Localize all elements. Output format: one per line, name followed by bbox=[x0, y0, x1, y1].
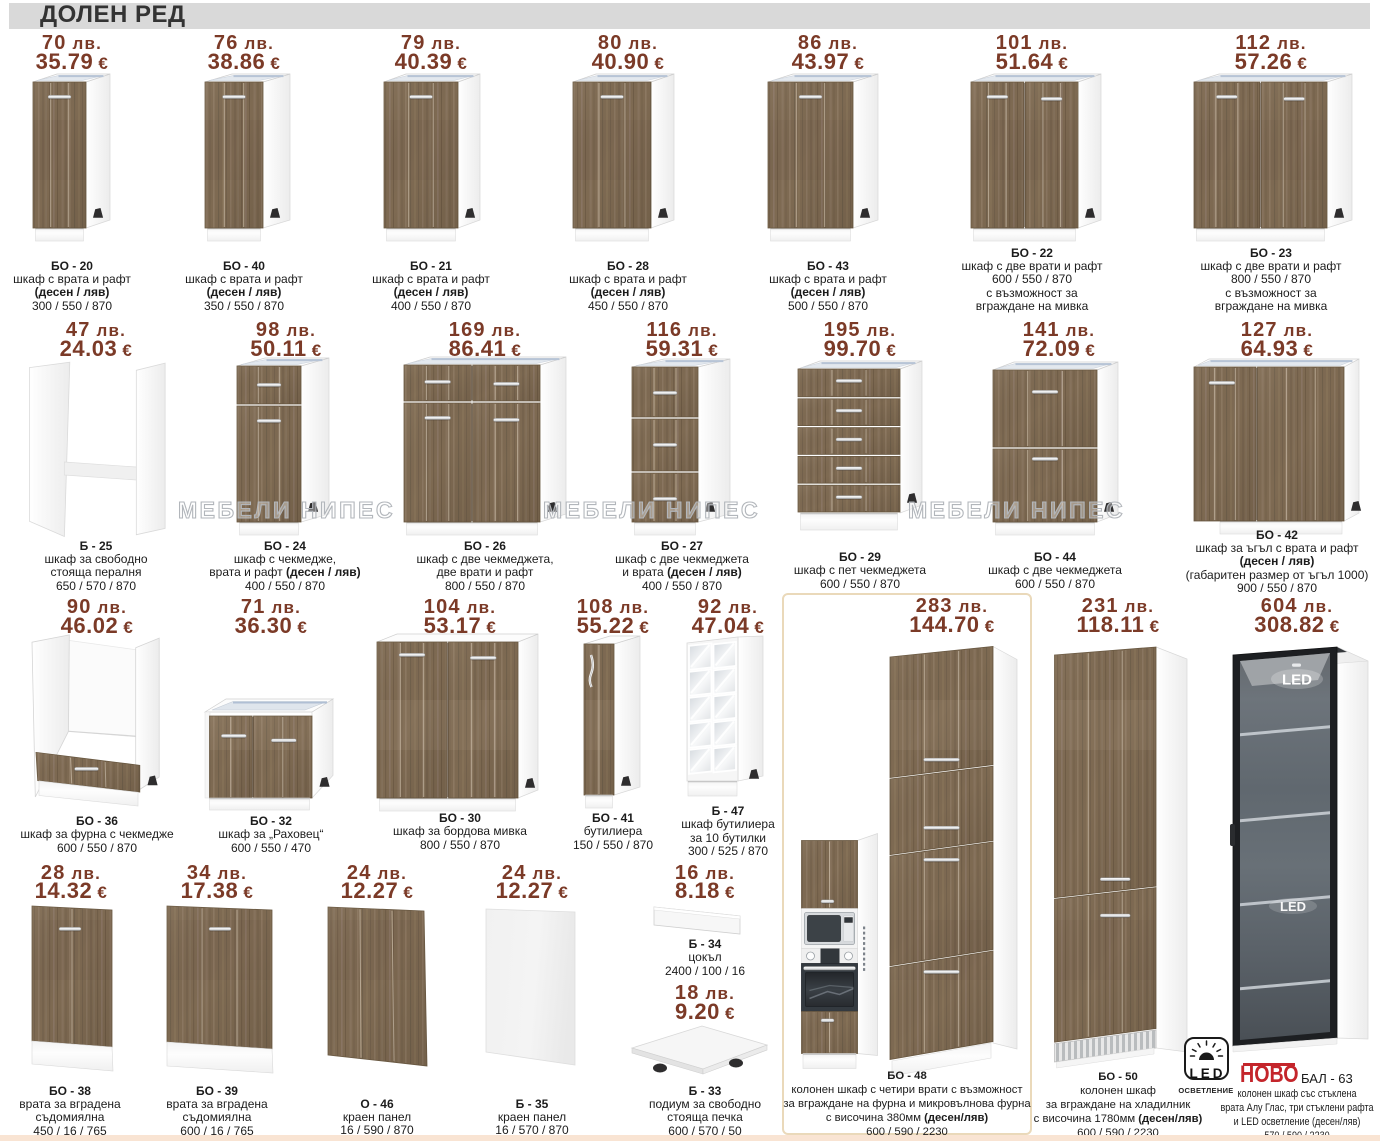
svg-text:LED: LED bbox=[1280, 899, 1306, 914]
svg-text:LED: LED bbox=[1282, 672, 1312, 689]
